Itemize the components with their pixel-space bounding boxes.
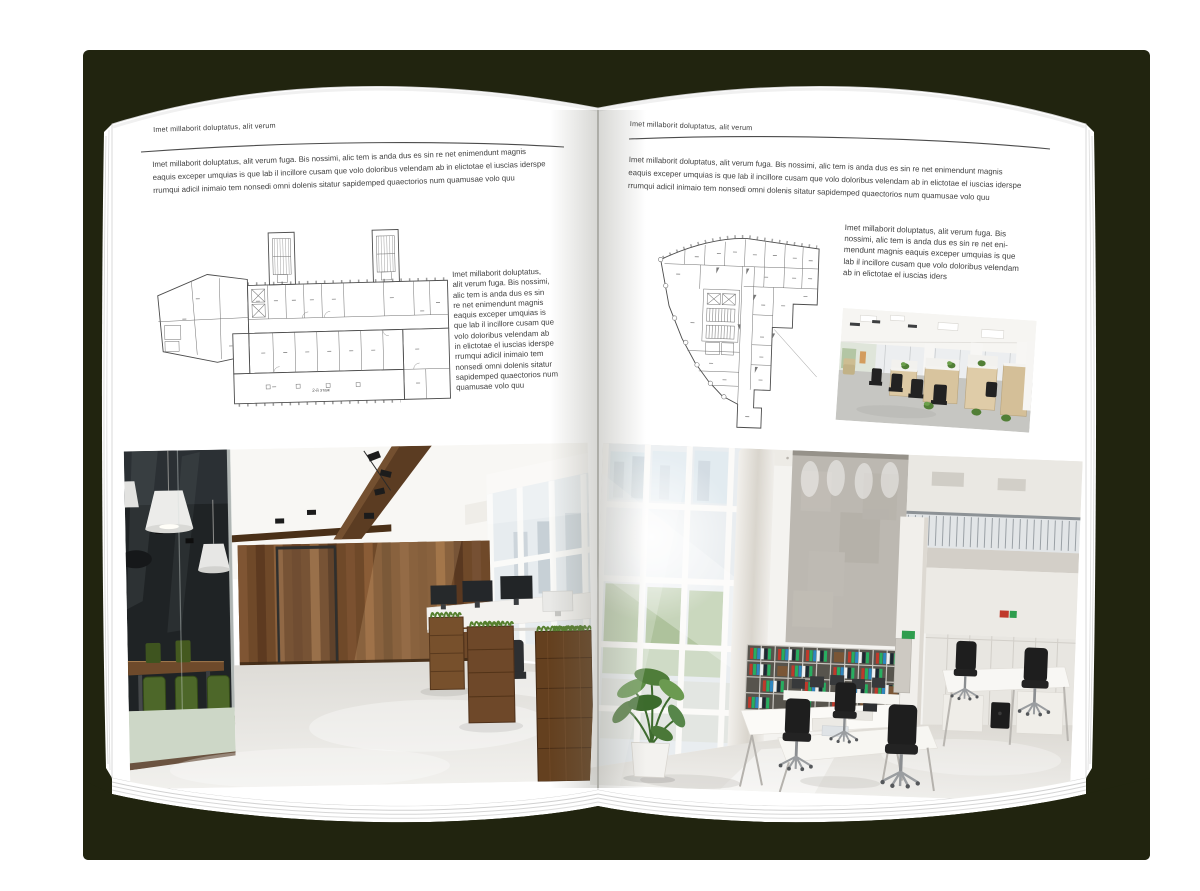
floor-plan-right bbox=[640, 221, 835, 433]
right-header-rule bbox=[628, 133, 1052, 151]
floor-plan-left: 2-й этаж bbox=[150, 222, 457, 418]
photo-small-open-office bbox=[836, 308, 1037, 433]
right-page-title: Imet millaborit doluptatus, alit verum bbox=[630, 119, 753, 132]
floor-plan-caption: 2-й этаж bbox=[312, 386, 330, 392]
magazine-spread-mockup: Imet millaborit doluptatus, alit verum I… bbox=[0, 0, 1200, 891]
left-side-text: Imet millaborit doluptatus, alit verum f… bbox=[452, 266, 559, 393]
photo-left-office-interior bbox=[124, 443, 594, 790]
photo-right-atrium-office bbox=[590, 443, 1083, 803]
right-side-text: Imet millaborit doluptatus, alit verum f… bbox=[843, 222, 1021, 285]
left-page-title: Imet millaborit doluptatus, alit verum bbox=[153, 121, 276, 134]
right-intro-paragraph: Imet millaborit doluptatus, alit verum f… bbox=[628, 153, 1022, 205]
side-line: quamusae volo quu bbox=[456, 380, 559, 394]
